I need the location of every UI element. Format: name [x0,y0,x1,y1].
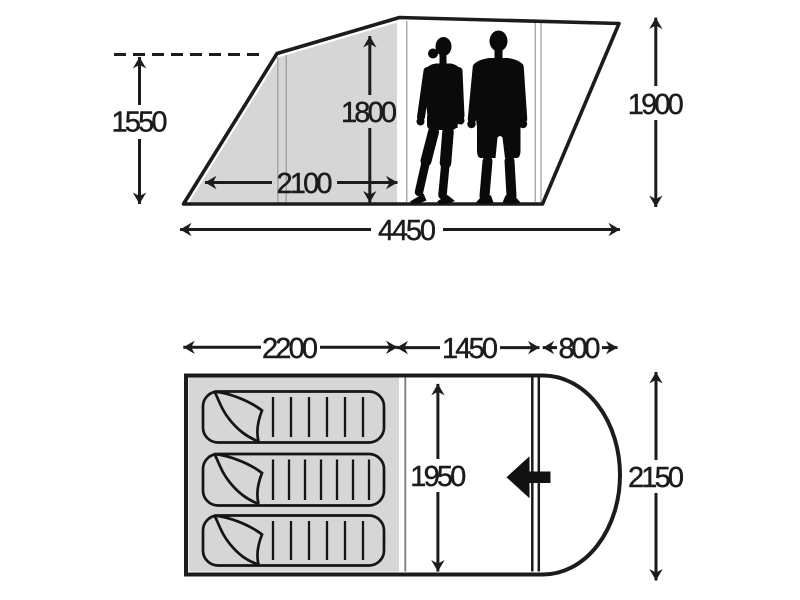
svg-text:1800: 1800 [341,97,397,129]
svg-text:1900: 1900 [628,89,684,121]
svg-text:800: 800 [559,333,601,365]
svg-text:2150: 2150 [628,462,684,494]
svg-text:2200: 2200 [262,333,318,365]
svg-text:4450: 4450 [378,215,436,247]
svg-text:1950: 1950 [410,461,466,493]
svg-text:2100: 2100 [277,168,333,200]
svg-text:1450: 1450 [442,333,498,365]
svg-text:1550: 1550 [112,107,168,139]
